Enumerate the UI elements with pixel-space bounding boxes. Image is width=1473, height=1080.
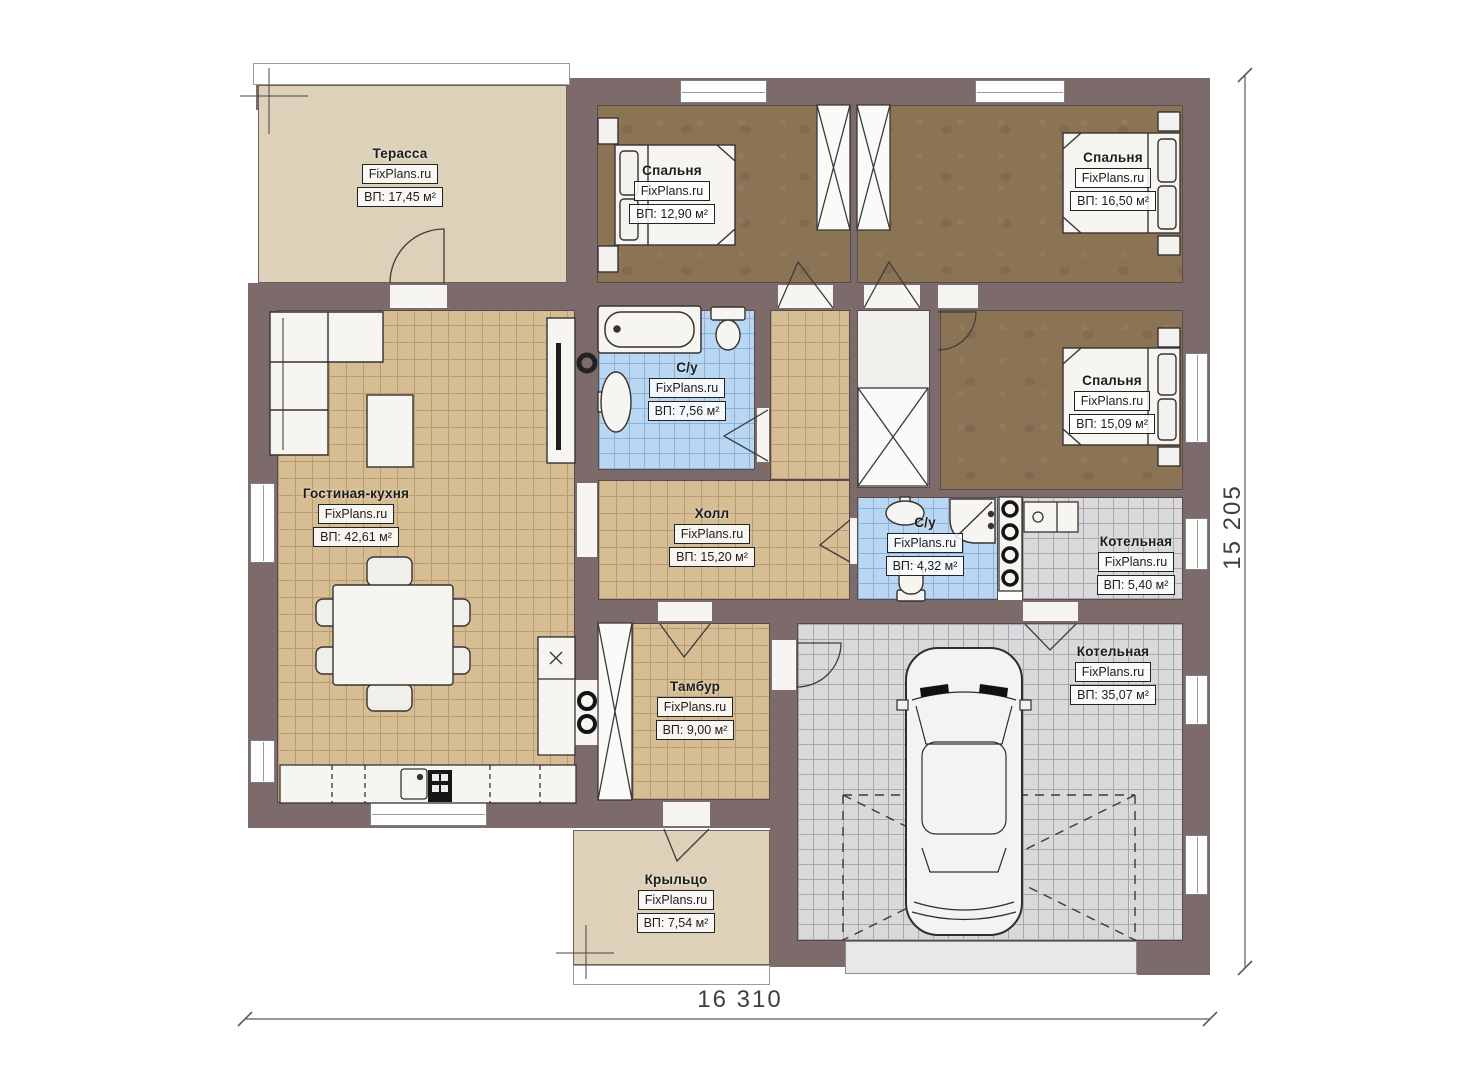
wall-garage-bottom-stub <box>770 940 845 967</box>
dimension-height: 15 205 <box>1219 472 1247 582</box>
watermark-badge: FixPlans.ru <box>657 697 734 717</box>
door-opening-vestibule <box>658 602 712 621</box>
room-label-bathroom-small: С/у FixPlans.ru ВП: 4,32 м² <box>855 515 995 576</box>
room-area-badge: ВП: 4,32 м² <box>886 556 965 576</box>
room-area-badge: ВП: 15,09 м² <box>1069 414 1155 434</box>
room-label-terrace: Терасса FixPlans.ru ВП: 17,45 м² <box>330 146 470 207</box>
room-label-vestibule: Тамбур FixPlans.ru ВП: 9,00 м² <box>625 679 765 740</box>
door-opening-boiler-garage <box>1023 602 1078 621</box>
wall-top <box>567 78 1210 105</box>
wall-bath-bottom <box>598 470 770 480</box>
room-label-bedroom3: Спальня FixPlans.ru ВП: 15,09 м² <box>1042 373 1182 434</box>
watermark-badge: FixPlans.ru <box>887 533 964 553</box>
floor-hall-corridor <box>770 310 850 480</box>
watermark-badge: FixPlans.ru <box>638 890 715 910</box>
watermark-badge: FixPlans.ru <box>1075 168 1152 188</box>
door-opening-bedroom2 <box>864 285 920 308</box>
room-title: Гостиная-кухня <box>286 486 426 501</box>
window-bedroom2 <box>975 80 1065 103</box>
room-label-living-kitchen: Гостиная-кухня FixPlans.ru ВП: 42,61 м² <box>286 486 426 547</box>
room-title: Крыльцо <box>606 872 746 887</box>
window-garage-2 <box>1185 835 1208 895</box>
garage-gate <box>845 941 1137 974</box>
floor-closet-niche <box>857 310 930 488</box>
floor-living-kitchen <box>277 310 575 803</box>
room-area-badge: ВП: 9,00 м² <box>656 720 735 740</box>
window-garage-1 <box>1185 675 1208 725</box>
room-area-badge: ВП: 15,20 м² <box>669 547 755 567</box>
door-opening-entrance <box>663 802 710 826</box>
watermark-badge: FixPlans.ru <box>318 504 395 524</box>
wall-bedroom3-left <box>930 310 940 490</box>
watermark-badge: FixPlans.ru <box>1074 391 1151 411</box>
room-title: Терасса <box>330 146 470 161</box>
room-label-bedroom1: Спальня FixPlans.ru ВП: 12,90 м² <box>602 163 742 224</box>
room-label-boiler: Котельная FixPlans.ru ВП: 5,40 м² <box>1066 534 1206 595</box>
watermark-badge: FixPlans.ru <box>362 164 439 184</box>
door-opening-bedroom1 <box>778 285 833 308</box>
terrace-roof-edge <box>253 63 570 85</box>
window-bedroom1 <box>680 80 767 103</box>
window-kitchen <box>370 802 487 826</box>
room-title: Холл <box>642 506 782 521</box>
kitchen-stove-niche <box>575 680 598 745</box>
room-label-porch: Крыльцо FixPlans.ru ВП: 7,54 м² <box>606 872 746 933</box>
room-title: Спальня <box>1043 150 1183 165</box>
room-title: С/у <box>855 515 995 530</box>
room-label-bedroom2: Спальня FixPlans.ru ВП: 16,50 м² <box>1043 150 1183 211</box>
door-opening-terrace <box>390 285 447 308</box>
window-living-1 <box>250 483 275 563</box>
room-title: С/у <box>617 360 757 375</box>
watermark-badge: FixPlans.ru <box>674 524 751 544</box>
room-area-badge: ВП: 5,40 м² <box>1097 575 1176 595</box>
room-label-garage: Котельная FixPlans.ru ВП: 35,07 м² <box>1043 644 1183 705</box>
dimension-width: 16 310 <box>680 986 800 1014</box>
floor-plan: Терасса FixPlans.ru ВП: 17,45 м² Спальня… <box>0 0 1473 1080</box>
porch-step <box>573 965 770 985</box>
room-area-badge: ВП: 35,07 м² <box>1070 685 1156 705</box>
wall-mid-horizontal <box>248 283 1183 310</box>
door-opening-vestibule-garage <box>772 640 796 690</box>
room-title: Котельная <box>1043 644 1183 659</box>
room-area-badge: ВП: 12,90 м² <box>629 204 715 224</box>
room-title: Котельная <box>1066 534 1206 549</box>
room-title: Спальня <box>1042 373 1182 388</box>
watermark-badge: FixPlans.ru <box>649 378 726 398</box>
room-area-badge: ВП: 7,56 м² <box>648 401 727 421</box>
wall-corner-bottom-right <box>1137 940 1210 975</box>
passage-living-hall <box>577 483 597 557</box>
window-living-2 <box>250 740 275 783</box>
room-area-badge: ВП: 17,45 м² <box>357 187 443 207</box>
door-opening-bedroom3 <box>938 285 978 308</box>
watermark-badge: FixPlans.ru <box>1098 552 1175 572</box>
watermark-badge: FixPlans.ru <box>1075 662 1152 682</box>
room-area-badge: ВП: 16,50 м² <box>1070 191 1156 211</box>
watermark-badge: FixPlans.ru <box>634 181 711 201</box>
window-bedroom3 <box>1185 353 1208 443</box>
room-label-hall: Холл FixPlans.ru ВП: 15,20 м² <box>642 506 782 567</box>
dimension-line-bottom <box>238 1012 1217 1026</box>
room-label-bathroom-main: С/у FixPlans.ru ВП: 7,56 м² <box>617 360 757 421</box>
room-title: Спальня <box>602 163 742 178</box>
room-area-badge: ВП: 42,61 м² <box>313 527 399 547</box>
room-title: Тамбур <box>625 679 765 694</box>
door-opening-bathroom-main <box>757 408 769 462</box>
wall-left-column <box>567 78 597 310</box>
room-area-badge: ВП: 7,54 м² <box>637 913 716 933</box>
